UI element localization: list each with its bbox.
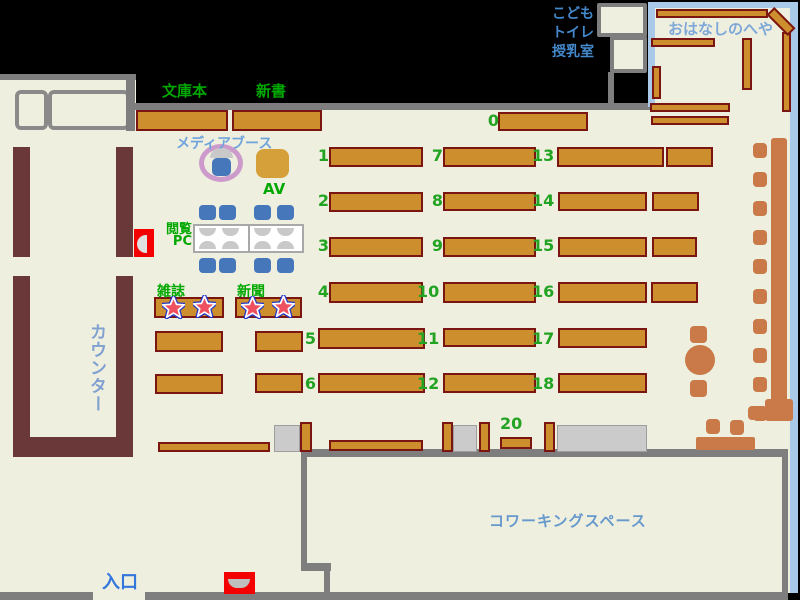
chair-icon: [753, 377, 767, 392]
bench-foot: [765, 399, 793, 421]
bookshelf: [557, 147, 664, 167]
bookshelf: [558, 373, 647, 393]
paperback-label: 文庫本: [162, 80, 207, 101]
bookshelf: [318, 373, 425, 393]
pc-chair: [254, 205, 271, 220]
bookshelf: [443, 192, 536, 211]
pc-seat-icon: [199, 241, 216, 249]
shelf-number-label: 2: [307, 192, 329, 210]
bookshelf: [442, 422, 453, 452]
blue-wall: [648, 2, 798, 8]
shelf-number-label: 7: [421, 147, 443, 165]
shelf-number-label: 0: [477, 112, 499, 130]
av-kiosk: [256, 149, 289, 178]
new-books-label: 新書: [256, 80, 286, 101]
shelf-number-label: 18: [532, 375, 554, 393]
av-label: AV: [263, 180, 285, 198]
bookshelf: [652, 66, 661, 99]
bookshelf: [155, 374, 223, 394]
chair-icon: [753, 289, 767, 304]
pc-chair: [199, 258, 216, 273]
bookshelf: [652, 192, 699, 211]
pc-chair: [277, 205, 294, 220]
shelf-number-label: 10: [417, 283, 439, 301]
wall: [782, 455, 788, 595]
shelf-number-label: 16: [532, 283, 554, 301]
star-icon: [241, 296, 264, 319]
staff-desk-large: [48, 90, 130, 130]
gray-locker: [274, 425, 300, 452]
counter-bar: [13, 437, 133, 457]
pc-seat-icon: [254, 241, 271, 249]
pc-chair: [277, 258, 294, 273]
counter-bar: [116, 276, 133, 457]
chair-icon: [753, 143, 767, 158]
wall: [301, 449, 307, 569]
bookshelf: [666, 147, 713, 167]
pc-seat-icon: [199, 228, 216, 236]
pc-seat-icon: [222, 241, 239, 249]
wall: [0, 74, 136, 80]
wall: [131, 103, 651, 110]
nursing-label: 授乳室: [546, 43, 594, 62]
round-table: [685, 345, 715, 375]
media-booth-seat: [212, 158, 231, 176]
chair-icon: [753, 319, 767, 334]
bookshelf: [329, 440, 423, 451]
star-icon: [272, 295, 295, 318]
bookshelf: [558, 282, 647, 303]
wall: [608, 72, 614, 110]
wall: [0, 592, 93, 600]
pc-table: [193, 224, 304, 253]
shelf-number-label: 13: [532, 147, 554, 165]
blue-wall: [790, 2, 798, 593]
pc-chair: [219, 258, 236, 273]
bookshelf: [558, 192, 647, 211]
bookshelf: [443, 147, 536, 167]
library-floor-map: こども トイレ 授乳室 文庫本 新書 おはなしのへや メディアブース AV 閲覧…: [0, 0, 800, 600]
shelf-number-label: 6: [294, 375, 316, 393]
slot-half-disc-icon: [228, 579, 250, 588]
pc-seat-icon: [277, 228, 294, 236]
nursing-room: [610, 36, 647, 73]
bookshelf: [558, 237, 647, 257]
bookshelf: [158, 442, 270, 452]
browsing-pc-label: 閲覧 PC: [158, 224, 192, 248]
kids-toilet-room: [597, 3, 647, 37]
bookshelf: [443, 373, 536, 393]
chair-icon: [753, 259, 767, 274]
toilet-label: トイレ: [546, 24, 594, 43]
star-icon: [193, 295, 216, 318]
shelf-number-label: 12: [417, 375, 439, 393]
bookshelf: [232, 110, 322, 131]
bookshelf: [329, 147, 423, 167]
media-booth-label: メディアブース: [176, 133, 272, 153]
pc-chair: [219, 205, 236, 220]
chair-icon: [690, 326, 707, 343]
bookshelf: [558, 328, 647, 348]
bookshelf: [651, 38, 715, 47]
shelf-number-label: 1: [307, 147, 329, 165]
bookshelf: [155, 331, 223, 352]
pc-seat-icon: [254, 228, 271, 236]
chair-icon: [753, 348, 767, 363]
bookshelf: [656, 9, 768, 18]
pc-chair: [199, 205, 216, 220]
bookshelf: [136, 110, 228, 131]
entrance-return-box: [224, 572, 255, 594]
bookshelf: [652, 237, 697, 257]
bench-horizontal: [696, 437, 755, 450]
pc-seat-icon: [222, 228, 239, 236]
coworking-label: コワーキングスペース: [489, 510, 647, 531]
kids-area-labels: こども トイレ 授乳室: [546, 5, 594, 62]
shelf-number-label: 8: [421, 192, 443, 210]
bookshelf: [443, 282, 536, 303]
chair-icon: [690, 380, 707, 397]
bookshelf: [329, 237, 423, 257]
bookshelf: [651, 116, 729, 125]
shelf-number-label: 5: [294, 330, 316, 348]
gray-locker: [557, 425, 647, 452]
chair-icon: [748, 406, 763, 420]
bookshelf: [329, 282, 423, 303]
counter-label: カウンター: [84, 323, 109, 413]
counter-bar: [13, 276, 30, 457]
bookshelf: [300, 422, 312, 452]
shelf-number-label: 11: [417, 330, 439, 348]
shelf-number-label: 15: [532, 237, 554, 255]
chair-icon: [753, 230, 767, 245]
bookshelf: [498, 112, 588, 131]
shelf-number-label: 9: [421, 237, 443, 255]
pc-chair: [254, 258, 271, 273]
bookshelf: [500, 437, 532, 449]
bookshelf: [544, 422, 555, 452]
shelf-number-label: 4: [307, 283, 329, 301]
shelf-number-label: 14: [532, 192, 554, 210]
pc-table-divider: [248, 226, 250, 251]
pc-seat-icon: [277, 241, 294, 249]
story-room-label: おはなしのへや: [668, 18, 773, 39]
browsing-label-line2: PC: [158, 236, 192, 248]
bookshelf: [650, 103, 730, 112]
bookshelf: [329, 192, 423, 212]
bookshelf: [742, 38, 752, 90]
shelf-number-label: 20: [500, 415, 522, 433]
bookshelf: [443, 328, 536, 347]
bench-vertical: [771, 138, 787, 405]
bookshelf: [782, 32, 791, 112]
chair-icon: [753, 172, 767, 187]
return-slot-box: [134, 229, 154, 257]
star-icon: [162, 296, 185, 319]
counter-bar: [116, 147, 133, 257]
bookshelf: [479, 422, 490, 452]
entrance-label: 入口: [102, 568, 138, 594]
kids-label: こども: [546, 5, 594, 24]
shelf-number-label: 17: [532, 330, 554, 348]
gray-locker: [453, 425, 477, 452]
chair-icon: [706, 419, 720, 434]
bookshelf: [318, 328, 425, 349]
chair-icon: [753, 201, 767, 216]
counter-bar: [13, 147, 30, 257]
bookshelf: [443, 237, 536, 257]
shelf-number-label: 3: [307, 237, 329, 255]
slot-half-disc-icon: [137, 235, 147, 253]
staff-desk-small: [15, 90, 48, 130]
bookshelf: [651, 282, 698, 303]
chair-icon: [730, 420, 744, 435]
